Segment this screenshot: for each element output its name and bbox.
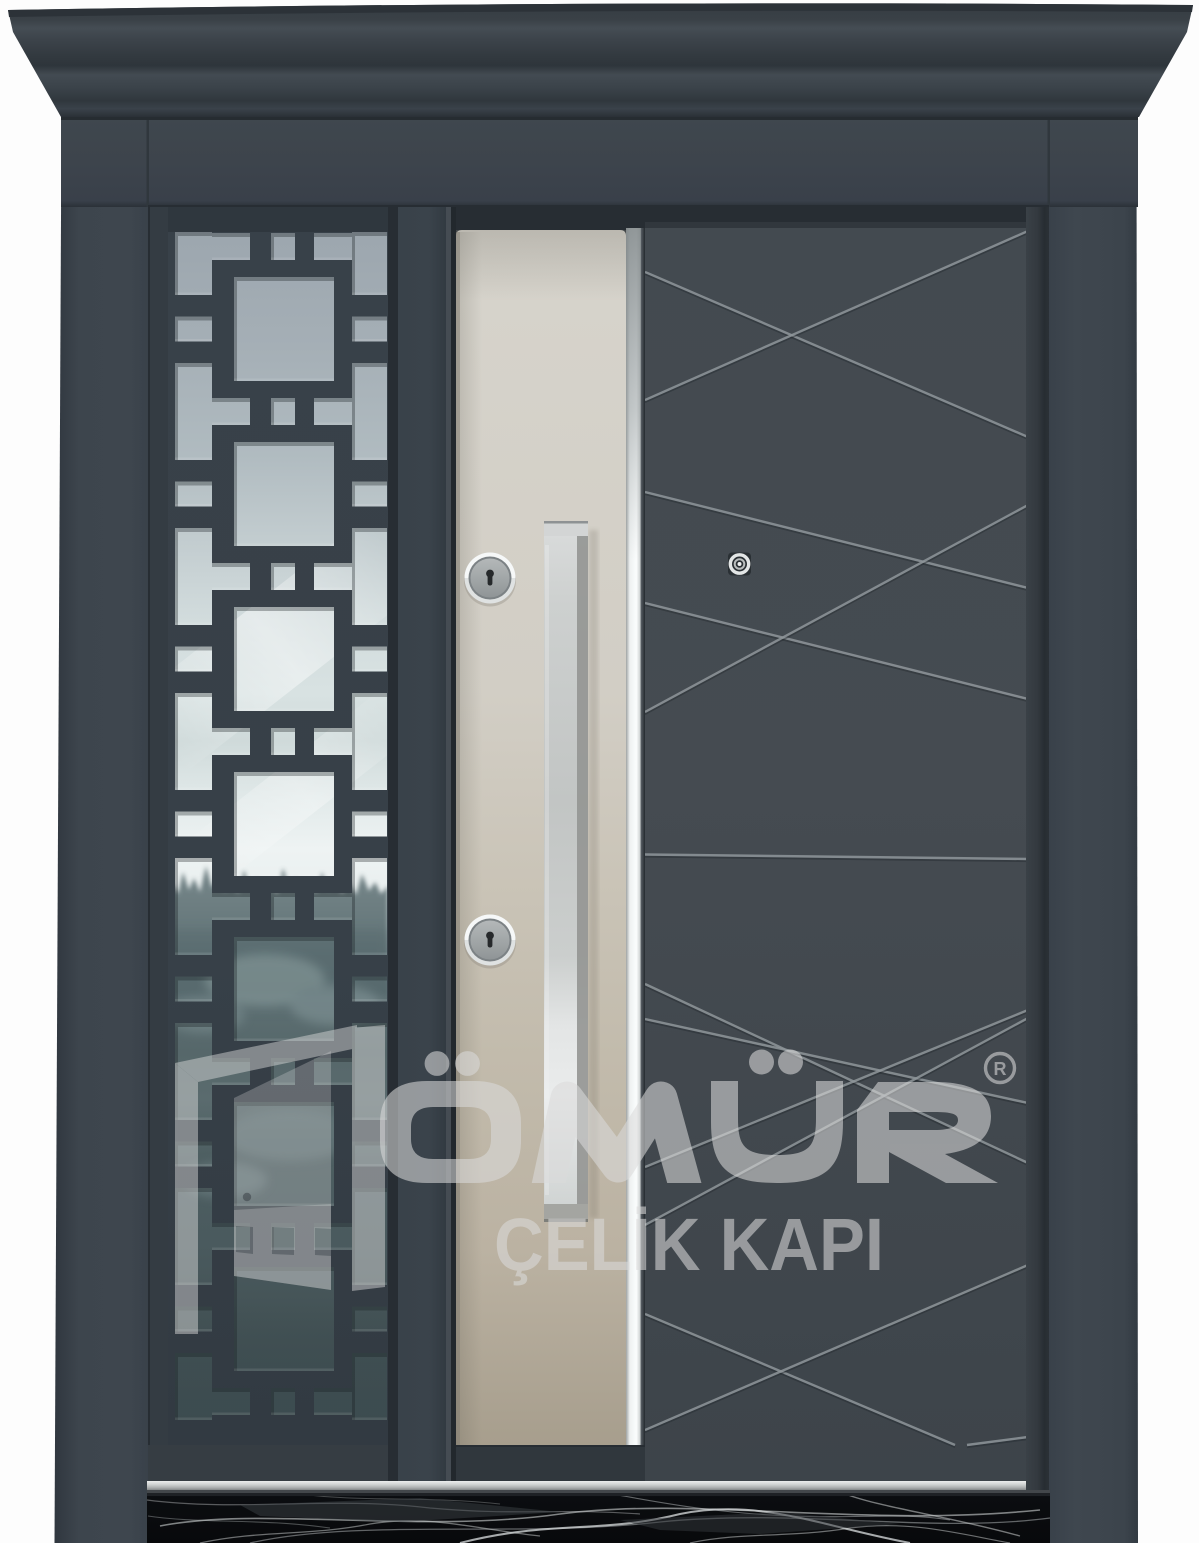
svg-text:ÇELİK KAPI: ÇELİK KAPI xyxy=(494,1203,884,1286)
svg-text:R: R xyxy=(994,1059,1007,1079)
